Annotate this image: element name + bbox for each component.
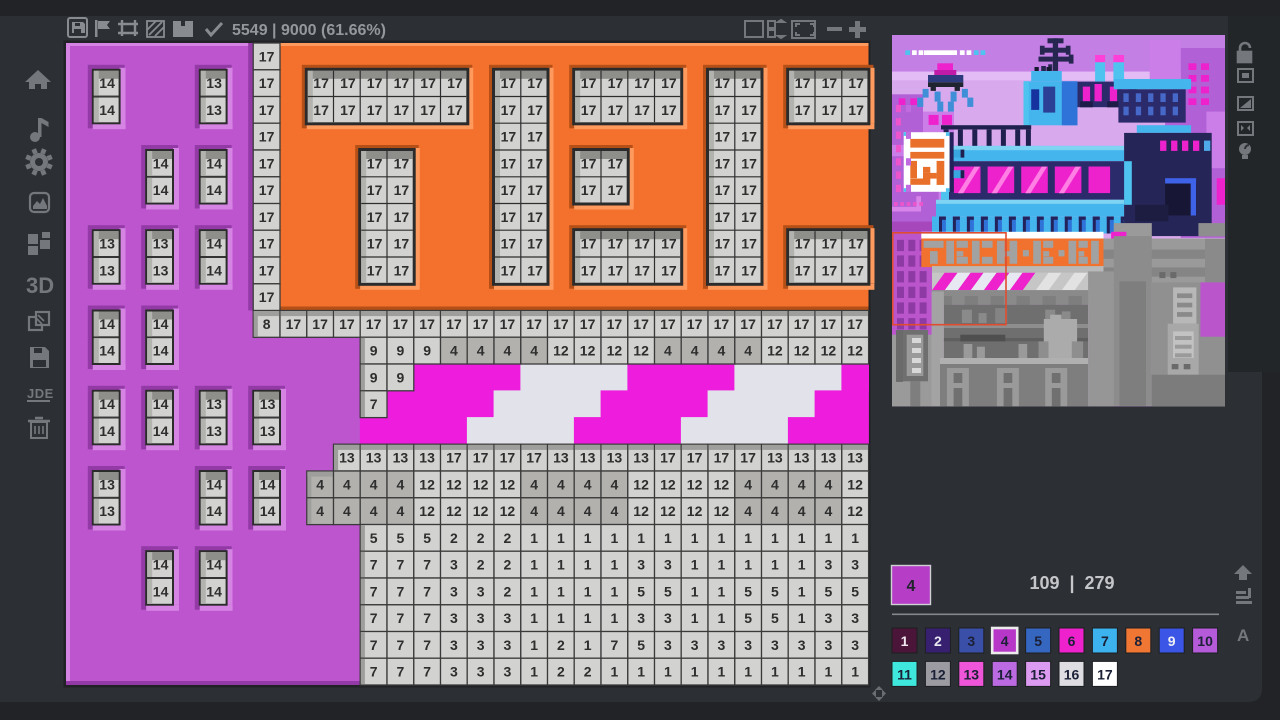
- svg-text:7: 7: [1101, 633, 1109, 649]
- svg-text:17: 17: [526, 316, 542, 332]
- svg-text:14: 14: [153, 343, 169, 359]
- svg-text:14: 14: [206, 262, 222, 278]
- svg-text:12: 12: [633, 476, 649, 492]
- svg-text:17: 17: [447, 102, 463, 118]
- svg-text:17: 17: [501, 236, 517, 252]
- svg-text:5: 5: [851, 583, 859, 599]
- svg-text:3: 3: [477, 583, 485, 599]
- svg-text:10: 10: [1197, 633, 1213, 649]
- svg-text:12: 12: [580, 343, 596, 359]
- svg-text:1: 1: [771, 530, 779, 546]
- svg-text:4: 4: [744, 343, 752, 359]
- svg-text:4: 4: [611, 476, 619, 492]
- svg-text:4: 4: [744, 476, 752, 492]
- svg-text:13: 13: [99, 476, 115, 492]
- svg-text:17: 17: [312, 316, 328, 332]
- svg-text:12: 12: [687, 476, 703, 492]
- svg-text:17: 17: [394, 182, 410, 198]
- svg-text:7: 7: [370, 610, 378, 626]
- svg-text:17: 17: [500, 316, 516, 332]
- svg-text:14: 14: [99, 343, 115, 359]
- svg-text:9: 9: [370, 343, 378, 359]
- svg-text:4: 4: [397, 503, 405, 519]
- svg-text:14: 14: [153, 396, 169, 412]
- svg-text:17: 17: [259, 48, 275, 64]
- svg-text:9: 9: [370, 369, 378, 385]
- svg-text:12: 12: [847, 503, 863, 519]
- svg-text:15: 15: [1030, 666, 1046, 682]
- svg-text:1: 1: [584, 610, 592, 626]
- svg-text:12: 12: [767, 343, 783, 359]
- svg-text:9: 9: [423, 343, 431, 359]
- svg-text:13: 13: [153, 262, 169, 278]
- svg-text:5: 5: [637, 583, 645, 599]
- svg-text:3: 3: [664, 557, 672, 573]
- svg-text:4: 4: [316, 476, 324, 492]
- svg-text:13: 13: [153, 236, 169, 252]
- svg-text:17: 17: [366, 316, 382, 332]
- svg-text:4: 4: [611, 503, 619, 519]
- svg-text:17: 17: [447, 75, 463, 91]
- svg-text:1: 1: [530, 583, 538, 599]
- svg-text:7: 7: [423, 637, 431, 653]
- svg-text:17: 17: [394, 75, 410, 91]
- svg-text:13: 13: [580, 450, 596, 466]
- svg-text:1: 1: [718, 583, 726, 599]
- svg-text:2: 2: [477, 530, 485, 546]
- svg-text:4: 4: [316, 503, 324, 519]
- svg-text:14: 14: [997, 666, 1013, 682]
- svg-text:12: 12: [660, 476, 676, 492]
- svg-text:3: 3: [637, 610, 645, 626]
- svg-text:17: 17: [608, 182, 624, 198]
- svg-text:14: 14: [260, 476, 276, 492]
- svg-text:3: 3: [450, 610, 458, 626]
- svg-text:1: 1: [530, 557, 538, 573]
- svg-text:4: 4: [771, 476, 779, 492]
- svg-text:17: 17: [661, 102, 677, 118]
- svg-text:2: 2: [504, 557, 512, 573]
- svg-text:3: 3: [664, 637, 672, 653]
- svg-text:2: 2: [557, 664, 565, 680]
- svg-text:14: 14: [153, 182, 169, 198]
- svg-text:17: 17: [501, 262, 517, 278]
- svg-text:2: 2: [584, 664, 592, 680]
- svg-text:1: 1: [798, 664, 806, 680]
- svg-text:12: 12: [419, 476, 435, 492]
- svg-text:17: 17: [581, 182, 597, 198]
- svg-text:14: 14: [99, 316, 115, 332]
- svg-text:17: 17: [715, 209, 731, 225]
- svg-text:3: 3: [744, 637, 752, 653]
- svg-text:14: 14: [99, 102, 115, 118]
- svg-text:13: 13: [964, 666, 980, 682]
- svg-text:17: 17: [795, 75, 811, 91]
- svg-text:3: 3: [771, 637, 779, 653]
- svg-text:12: 12: [930, 666, 946, 682]
- svg-text:2: 2: [504, 583, 512, 599]
- svg-text:4: 4: [530, 343, 538, 359]
- svg-text:12: 12: [847, 343, 863, 359]
- svg-text:17: 17: [259, 182, 275, 198]
- svg-text:1: 1: [718, 610, 726, 626]
- svg-text:17: 17: [501, 209, 517, 225]
- svg-text:17: 17: [581, 102, 597, 118]
- svg-text:17: 17: [527, 129, 543, 145]
- svg-text:4: 4: [530, 503, 538, 519]
- svg-text:1: 1: [798, 557, 806, 573]
- svg-text:17: 17: [741, 102, 757, 118]
- svg-text:1: 1: [584, 583, 592, 599]
- svg-text:1: 1: [637, 530, 645, 546]
- svg-text:13: 13: [366, 450, 382, 466]
- svg-text:17: 17: [259, 75, 275, 91]
- svg-text:13: 13: [206, 396, 222, 412]
- svg-text:7: 7: [370, 583, 378, 599]
- svg-text:1: 1: [557, 610, 565, 626]
- svg-text:12: 12: [660, 503, 676, 519]
- svg-text:3: 3: [450, 557, 458, 573]
- svg-text:17: 17: [608, 102, 624, 118]
- svg-text:3: 3: [851, 610, 859, 626]
- svg-text:1: 1: [825, 664, 833, 680]
- svg-text:17: 17: [473, 450, 489, 466]
- svg-text:16: 16: [1064, 666, 1080, 682]
- svg-text:7: 7: [397, 664, 405, 680]
- svg-text:17: 17: [367, 155, 383, 171]
- svg-text:12: 12: [473, 503, 489, 519]
- svg-text:13: 13: [260, 423, 276, 439]
- svg-text:17: 17: [608, 155, 624, 171]
- svg-text:1: 1: [530, 637, 538, 653]
- svg-text:1: 1: [901, 633, 909, 649]
- svg-text:5: 5: [637, 637, 645, 653]
- svg-text:17: 17: [527, 262, 543, 278]
- svg-text:3: 3: [504, 610, 512, 626]
- svg-text:11: 11: [897, 666, 912, 682]
- svg-text:14: 14: [153, 583, 169, 599]
- svg-text:5: 5: [397, 530, 405, 546]
- svg-text:17: 17: [581, 236, 597, 252]
- svg-text:1: 1: [584, 557, 592, 573]
- svg-text:17: 17: [527, 182, 543, 198]
- svg-text:17: 17: [634, 262, 650, 278]
- svg-text:1: 1: [557, 530, 565, 546]
- svg-text:17: 17: [501, 102, 517, 118]
- svg-text:14: 14: [206, 583, 222, 599]
- svg-text:2: 2: [557, 637, 565, 653]
- svg-text:17: 17: [581, 75, 597, 91]
- svg-text:4: 4: [771, 503, 779, 519]
- svg-text:13: 13: [794, 450, 810, 466]
- svg-text:9: 9: [397, 343, 405, 359]
- svg-text:17: 17: [741, 75, 757, 91]
- svg-text:1: 1: [530, 664, 538, 680]
- svg-text:17: 17: [367, 182, 383, 198]
- svg-text:17: 17: [715, 75, 731, 91]
- svg-text:9: 9: [397, 369, 405, 385]
- svg-text:17: 17: [822, 262, 838, 278]
- svg-text:1: 1: [611, 664, 619, 680]
- svg-text:4: 4: [907, 578, 916, 595]
- svg-text:3: 3: [718, 637, 726, 653]
- svg-text:12: 12: [633, 503, 649, 519]
- svg-text:17: 17: [367, 262, 383, 278]
- svg-text:13: 13: [767, 450, 783, 466]
- svg-text:17: 17: [313, 75, 329, 91]
- svg-text:13: 13: [260, 396, 276, 412]
- svg-text:12: 12: [553, 343, 569, 359]
- svg-text:17: 17: [500, 450, 516, 466]
- svg-text:4: 4: [744, 503, 752, 519]
- svg-text:1: 1: [718, 664, 726, 680]
- svg-text:3: 3: [851, 637, 859, 653]
- svg-text:17: 17: [501, 75, 517, 91]
- svg-text:17: 17: [339, 316, 355, 332]
- svg-text:17: 17: [634, 75, 650, 91]
- svg-text:17: 17: [367, 209, 383, 225]
- svg-text:3: 3: [798, 637, 806, 653]
- svg-text:12: 12: [419, 503, 435, 519]
- svg-text:17: 17: [446, 450, 462, 466]
- svg-text:12: 12: [633, 343, 649, 359]
- svg-text:4: 4: [584, 503, 592, 519]
- svg-text:17: 17: [501, 129, 517, 145]
- svg-text:13: 13: [339, 450, 355, 466]
- svg-text:1: 1: [771, 664, 779, 680]
- svg-text:1: 1: [557, 583, 565, 599]
- svg-text:7: 7: [397, 583, 405, 599]
- svg-text:17: 17: [795, 262, 811, 278]
- svg-text:17: 17: [634, 236, 650, 252]
- svg-text:3D: 3D: [26, 273, 54, 298]
- svg-text:17: 17: [821, 316, 837, 332]
- svg-text:7: 7: [423, 557, 431, 573]
- svg-text:12: 12: [714, 476, 730, 492]
- svg-text:1: 1: [691, 530, 699, 546]
- svg-text:13: 13: [99, 503, 115, 519]
- svg-text:4: 4: [557, 503, 565, 519]
- svg-text:12: 12: [500, 503, 516, 519]
- svg-text:5: 5: [744, 583, 752, 599]
- svg-text:1: 1: [611, 530, 619, 546]
- svg-text:6: 6: [1068, 633, 1076, 649]
- svg-text:1: 1: [851, 530, 859, 546]
- svg-text:13: 13: [99, 236, 115, 252]
- svg-text:1: 1: [584, 637, 592, 653]
- svg-text:109 | 279: 109 | 279: [1029, 573, 1114, 593]
- svg-text:17: 17: [259, 102, 275, 118]
- svg-text:7: 7: [370, 557, 378, 573]
- svg-text:17: 17: [419, 316, 435, 332]
- svg-text:17: 17: [822, 236, 838, 252]
- svg-text:12: 12: [821, 343, 837, 359]
- svg-text:8: 8: [1134, 633, 1142, 649]
- svg-text:17: 17: [794, 316, 810, 332]
- svg-text:4: 4: [825, 503, 833, 519]
- svg-text:5549 | 9000 (61.66%): 5549 | 9000 (61.66%): [232, 22, 386, 39]
- svg-text:17: 17: [313, 102, 329, 118]
- svg-text:17: 17: [394, 155, 410, 171]
- svg-text:12: 12: [847, 476, 863, 492]
- svg-text:4: 4: [343, 476, 351, 492]
- svg-text:4: 4: [397, 476, 405, 492]
- svg-text:14: 14: [206, 236, 222, 252]
- svg-text:7: 7: [370, 396, 378, 412]
- svg-text:17: 17: [634, 102, 650, 118]
- svg-text:17: 17: [581, 155, 597, 171]
- svg-text:17: 17: [822, 102, 838, 118]
- svg-text:4: 4: [798, 503, 806, 519]
- svg-text:17: 17: [608, 262, 624, 278]
- svg-text:5: 5: [1034, 633, 1042, 649]
- svg-text:13: 13: [553, 450, 569, 466]
- svg-text:13: 13: [99, 262, 115, 278]
- svg-text:4: 4: [664, 343, 672, 359]
- svg-text:17: 17: [367, 102, 383, 118]
- svg-text:13: 13: [393, 450, 409, 466]
- svg-text:17: 17: [767, 316, 783, 332]
- svg-text:4: 4: [557, 476, 565, 492]
- svg-text:5: 5: [771, 583, 779, 599]
- svg-text:1: 1: [664, 530, 672, 546]
- svg-text:3: 3: [450, 637, 458, 653]
- svg-text:17: 17: [394, 262, 410, 278]
- svg-text:17: 17: [795, 236, 811, 252]
- svg-text:7: 7: [423, 583, 431, 599]
- svg-text:17: 17: [848, 102, 864, 118]
- svg-text:4: 4: [718, 343, 726, 359]
- svg-text:17: 17: [608, 75, 624, 91]
- svg-text:1: 1: [798, 610, 806, 626]
- svg-text:4: 4: [343, 503, 351, 519]
- svg-text:17: 17: [795, 102, 811, 118]
- svg-text:14: 14: [206, 155, 222, 171]
- svg-text:17: 17: [527, 75, 543, 91]
- svg-text:14: 14: [206, 182, 222, 198]
- svg-text:3: 3: [664, 610, 672, 626]
- svg-text:14: 14: [153, 316, 169, 332]
- svg-text:3: 3: [477, 664, 485, 680]
- svg-text:12: 12: [714, 503, 730, 519]
- svg-text:12: 12: [607, 343, 623, 359]
- svg-text:17: 17: [527, 102, 543, 118]
- svg-text:4: 4: [584, 476, 592, 492]
- svg-text:2: 2: [450, 530, 458, 546]
- svg-text:7: 7: [423, 664, 431, 680]
- svg-text:1: 1: [718, 530, 726, 546]
- svg-text:17: 17: [446, 316, 462, 332]
- svg-text:17: 17: [259, 262, 275, 278]
- svg-text:1: 1: [851, 664, 859, 680]
- svg-text:1: 1: [771, 557, 779, 573]
- svg-text:13: 13: [206, 102, 222, 118]
- svg-text:1: 1: [611, 557, 619, 573]
- svg-text:17: 17: [527, 155, 543, 171]
- svg-text:7: 7: [611, 637, 619, 653]
- svg-text:1: 1: [530, 610, 538, 626]
- svg-text:4: 4: [370, 476, 378, 492]
- svg-text:3: 3: [477, 610, 485, 626]
- svg-text:13: 13: [847, 450, 863, 466]
- svg-text:17: 17: [340, 75, 356, 91]
- svg-text:17: 17: [741, 155, 757, 171]
- svg-text:17: 17: [340, 102, 356, 118]
- svg-text:13: 13: [206, 423, 222, 439]
- svg-text:17: 17: [394, 102, 410, 118]
- svg-text:13: 13: [206, 75, 222, 91]
- svg-text:17: 17: [740, 450, 756, 466]
- svg-text:17: 17: [608, 236, 624, 252]
- svg-text:17: 17: [394, 209, 410, 225]
- svg-text:17: 17: [501, 155, 517, 171]
- svg-text:12: 12: [794, 343, 810, 359]
- svg-text:7: 7: [370, 637, 378, 653]
- svg-text:3: 3: [504, 637, 512, 653]
- svg-text:17: 17: [715, 129, 731, 145]
- svg-text:17: 17: [687, 450, 703, 466]
- svg-text:4: 4: [1001, 633, 1009, 649]
- svg-text:17: 17: [473, 316, 489, 332]
- svg-text:4: 4: [370, 503, 378, 519]
- svg-text:17: 17: [420, 102, 436, 118]
- svg-text:7: 7: [370, 664, 378, 680]
- svg-text:14: 14: [153, 155, 169, 171]
- svg-text:1: 1: [744, 557, 752, 573]
- svg-text:4: 4: [825, 476, 833, 492]
- svg-text:17: 17: [741, 209, 757, 225]
- svg-text:4: 4: [504, 343, 512, 359]
- svg-text:3: 3: [825, 610, 833, 626]
- svg-text:2: 2: [504, 530, 512, 546]
- svg-text:14: 14: [206, 557, 222, 573]
- svg-text:17: 17: [848, 262, 864, 278]
- svg-text:17: 17: [741, 262, 757, 278]
- svg-text:17: 17: [687, 316, 703, 332]
- svg-text:17: 17: [286, 316, 302, 332]
- svg-text:3: 3: [477, 637, 485, 653]
- svg-text:14: 14: [260, 503, 276, 519]
- svg-text:17: 17: [259, 209, 275, 225]
- svg-text:17: 17: [822, 75, 838, 91]
- svg-text:17: 17: [527, 236, 543, 252]
- svg-text:1: 1: [744, 664, 752, 680]
- svg-text:17: 17: [661, 75, 677, 91]
- svg-text:1: 1: [530, 530, 538, 546]
- svg-text:1: 1: [637, 664, 645, 680]
- svg-text:5: 5: [664, 583, 672, 599]
- svg-text:17: 17: [715, 182, 731, 198]
- svg-text:3: 3: [450, 583, 458, 599]
- svg-text:17: 17: [259, 289, 275, 305]
- svg-text:1: 1: [744, 530, 752, 546]
- svg-text:17: 17: [367, 236, 383, 252]
- svg-text:17: 17: [553, 316, 569, 332]
- svg-text:5: 5: [825, 583, 833, 599]
- svg-text:1: 1: [691, 664, 699, 680]
- svg-text:17: 17: [740, 316, 756, 332]
- svg-text:3: 3: [851, 557, 859, 573]
- svg-text:17: 17: [661, 262, 677, 278]
- svg-text:17: 17: [393, 316, 409, 332]
- svg-text:14: 14: [206, 503, 222, 519]
- svg-text:17: 17: [394, 236, 410, 252]
- svg-text:17: 17: [741, 182, 757, 198]
- svg-text:14: 14: [206, 476, 222, 492]
- svg-text:13: 13: [419, 450, 435, 466]
- svg-text:4: 4: [691, 343, 699, 359]
- svg-text:3: 3: [825, 637, 833, 653]
